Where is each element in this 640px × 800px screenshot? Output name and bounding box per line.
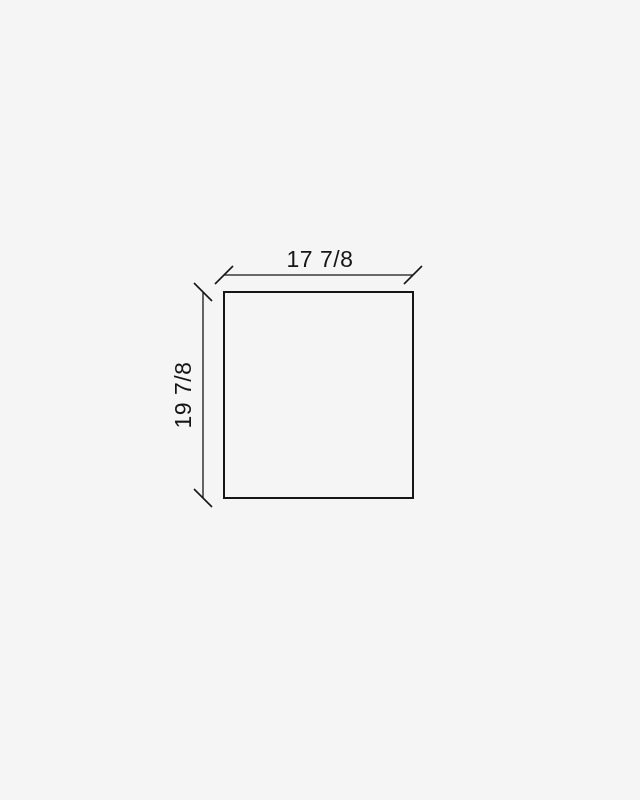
dimension-drawing: 17 7/8 19 7/8 — [0, 0, 640, 800]
height-dimension: 19 7/8 — [170, 283, 212, 507]
width-dimension-label: 17 7/8 — [287, 246, 354, 272]
height-dimension-label: 19 7/8 — [170, 362, 196, 429]
drawing-canvas: 17 7/8 19 7/8 — [0, 0, 640, 800]
panel-outline-rect — [224, 292, 413, 498]
width-dimension: 17 7/8 — [215, 246, 422, 284]
